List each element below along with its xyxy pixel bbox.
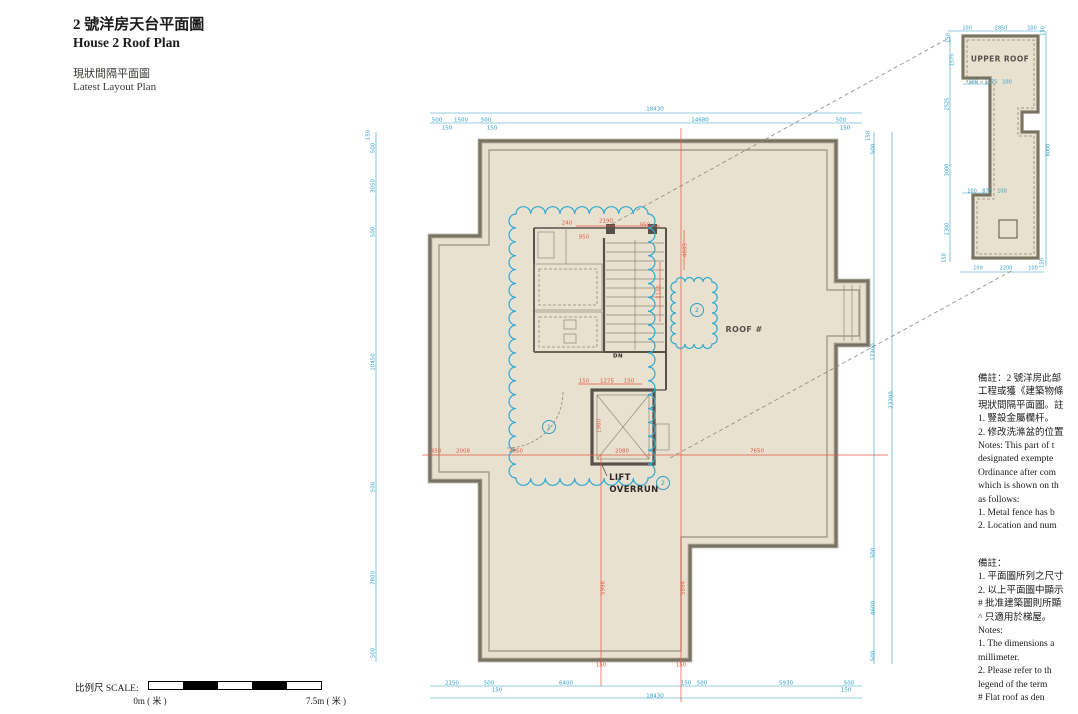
dimension-label: 150 [366, 130, 372, 141]
dimension-label: 6400 [559, 681, 573, 687]
dimension-label: 500 [484, 681, 495, 687]
dimension-label: 450 [431, 449, 442, 455]
dimension-label: 500 [871, 651, 877, 662]
dimension-label: 14680 [691, 118, 709, 124]
dimension-label: 2525 [946, 98, 951, 111]
notes-line: 工程或獲《建築物條 [978, 386, 1078, 399]
dimension-label: 150 [596, 663, 607, 669]
notes-line: 現狀間隔平面圖。註 [978, 400, 1078, 413]
scale-start-label: 0m ( 米 ) [133, 694, 166, 707]
notes-line: 1. The dimensions a [978, 638, 1078, 651]
dimension-label: 100 [997, 190, 1007, 195]
dimension-label: 5894 [681, 581, 687, 595]
scale-segment [149, 682, 183, 689]
reference-marker: 2 [656, 476, 670, 490]
dimension-label: 875 [982, 190, 992, 195]
dimension-label: 10450 [371, 353, 377, 371]
dimension-label: 500 [844, 681, 855, 687]
dimension-label: 3050 [371, 179, 377, 193]
dimension-label: 500 [371, 482, 377, 493]
dimension-label: 5930 [779, 681, 793, 687]
notes-line: 備註： [978, 558, 1078, 571]
notes-line: 2. Location and num [978, 520, 1078, 533]
dimension-label: 4600 [871, 601, 877, 615]
plan-label: ROOF # [725, 326, 762, 334]
dimension-label: 2850 [995, 27, 1008, 32]
plan-label: LIFT [609, 474, 631, 483]
dimension-label: 2200 [1000, 267, 1013, 272]
notes-line: as follows: [978, 494, 1078, 507]
dimension-label: 150 [681, 681, 692, 687]
notes-line: 2. Please refer to th [978, 665, 1078, 678]
sheet-title-en: House 2 Roof Plan [73, 35, 204, 51]
sheet-title-zh: 2 號洋房天台平面圖 [73, 13, 204, 34]
dimension-label: 500 [836, 118, 847, 124]
sheet-subtitle-zh: 現狀間隔平面圖 [73, 65, 204, 81]
dimension-label: 4850 [509, 449, 523, 455]
dimension-label: 3000 [946, 164, 951, 177]
dimension-label: 2300 [946, 223, 951, 236]
dimension-label: 100 [1027, 27, 1037, 32]
dimension-label: 1275 [600, 379, 614, 385]
dimension-label: 2008 [456, 449, 470, 455]
dimension-label: 100 [1002, 81, 1012, 86]
notes-line: Notes: This part of t [978, 440, 1078, 453]
sheet-subtitle-en: Latest Layout Plan [73, 81, 204, 93]
notes-line: Notes: [978, 625, 1078, 638]
notes-line: legend of the term [978, 679, 1078, 692]
dimension-label: 5998 [601, 581, 607, 595]
dimension-label: 950 [579, 235, 590, 241]
dimension-label: 150 [579, 379, 590, 385]
dimension-label: 150 [1041, 258, 1046, 268]
dimension-label: 100 [962, 27, 972, 32]
dimension-label: 4605 [683, 243, 689, 257]
dimension-label: 150 [442, 126, 453, 132]
notes-line: designated exempte [978, 453, 1078, 466]
dimension-label: 150 [841, 688, 852, 694]
dimension-label: 7800 [371, 571, 377, 585]
dimension-label: 240 [562, 221, 573, 227]
dimension-label: 2080 [615, 449, 629, 455]
dimension-label: 500 [371, 648, 377, 659]
scale-label: 比例尺 SCALE: [75, 680, 139, 694]
dimension-label: 1980 [597, 419, 603, 433]
scale-segment [287, 682, 321, 689]
dimension-label: 18430 [646, 694, 664, 700]
notes-line: which is shown on th [978, 480, 1078, 493]
dimension-label: 500 [871, 144, 877, 155]
dimension-label: 2150 [445, 681, 459, 687]
notes-line: ^ 只適用於梯屋。 [978, 612, 1078, 625]
dimension-label: 150 [947, 33, 952, 43]
notes-line: Ordinance after com [978, 467, 1078, 480]
dimension-label: 2125 [657, 285, 663, 299]
dimension-label: 150 [840, 126, 851, 132]
dimension-label: 500 [481, 118, 492, 124]
dimension-label: 7650 [750, 449, 764, 455]
notes-line: # Flat roof as den [978, 692, 1078, 705]
dimension-label: 500 [697, 681, 708, 687]
reference-marker: 2 [690, 303, 704, 317]
dimension-label: 150 [492, 688, 503, 694]
title-block: 2 號洋房天台平面圖 House 2 Roof Plan 現狀間隔平面圖 Lat… [73, 13, 204, 93]
reference-marker: 1 [542, 420, 556, 434]
notes-line: 2. 以上平面圖中顯示 [978, 585, 1078, 598]
dimension-label: 2190 [599, 219, 613, 225]
dimension-label: 100 [1028, 267, 1038, 272]
dimension-label: 18430 [646, 107, 664, 113]
notes-block-2: 備註：1. 平面圖所列之尺寸2. 以上平面圖中顯示# 批准建築圖則所顯^ 只適用… [978, 558, 1078, 705]
dimension-label: 150 [866, 131, 872, 142]
dimension-label: 100 [973, 267, 983, 272]
dimension-label: 500 [871, 548, 877, 559]
notes-line: 2. 修改洗滌盆的位置 [978, 427, 1078, 440]
dimension-label: 1575 [951, 54, 956, 67]
notes-line: 1. Metal fence has b [978, 507, 1078, 520]
annotation-layer: 1843050015005001468050015015015021505001… [0, 0, 1078, 714]
dimension-label: 100 [967, 190, 977, 195]
dimension-label: 150 [1042, 26, 1047, 36]
dimension-label: 950 [640, 223, 651, 229]
dimension-label: 17300 [871, 343, 877, 361]
scale-segment [218, 682, 252, 689]
dimension-label: 23300 [889, 391, 895, 409]
dimension-label: 1175 [985, 81, 998, 86]
dimension-label: 500 [371, 143, 377, 154]
notes-line: millimeter. [978, 652, 1078, 665]
scale-segment [183, 682, 217, 689]
scale-end-label: 7.5m ( 米 ) [306, 694, 346, 707]
drawing-sheet: 1843050015005001468050015015015021505001… [0, 0, 1078, 714]
plan-label: OVERRUN [609, 486, 658, 495]
scale-segment [252, 682, 286, 689]
notes-line: # 批准建築圖則所顯 [978, 598, 1078, 611]
dimension-label: 8000 [1047, 144, 1052, 157]
notes-line: 1. 豎設金屬欄杆。 [978, 413, 1078, 426]
notes-line: 1. 平面圖所列之尺寸 [978, 571, 1078, 584]
dimension-label: 500 [371, 227, 377, 238]
plan-label: DN [613, 354, 623, 360]
dimension-label: 150 [943, 253, 948, 263]
notes-line: 備註：2 號洋房此部 [978, 373, 1078, 386]
notes-block-1: 備註：2 號洋房此部工程或獲《建築物條現狀間隔平面圖。註1. 豎設金屬欄杆。2.… [978, 373, 1078, 534]
dimension-label: 150 [676, 663, 687, 669]
dimension-label: 500 [432, 118, 443, 124]
dimension-label: 150 [624, 379, 635, 385]
scale-bar [148, 681, 322, 690]
dimension-label: 150 [487, 126, 498, 132]
dimension-label: 100 [968, 81, 978, 86]
plan-label: UPPER ROOF [971, 55, 1029, 63]
dimension-label: 1500 [454, 118, 468, 124]
